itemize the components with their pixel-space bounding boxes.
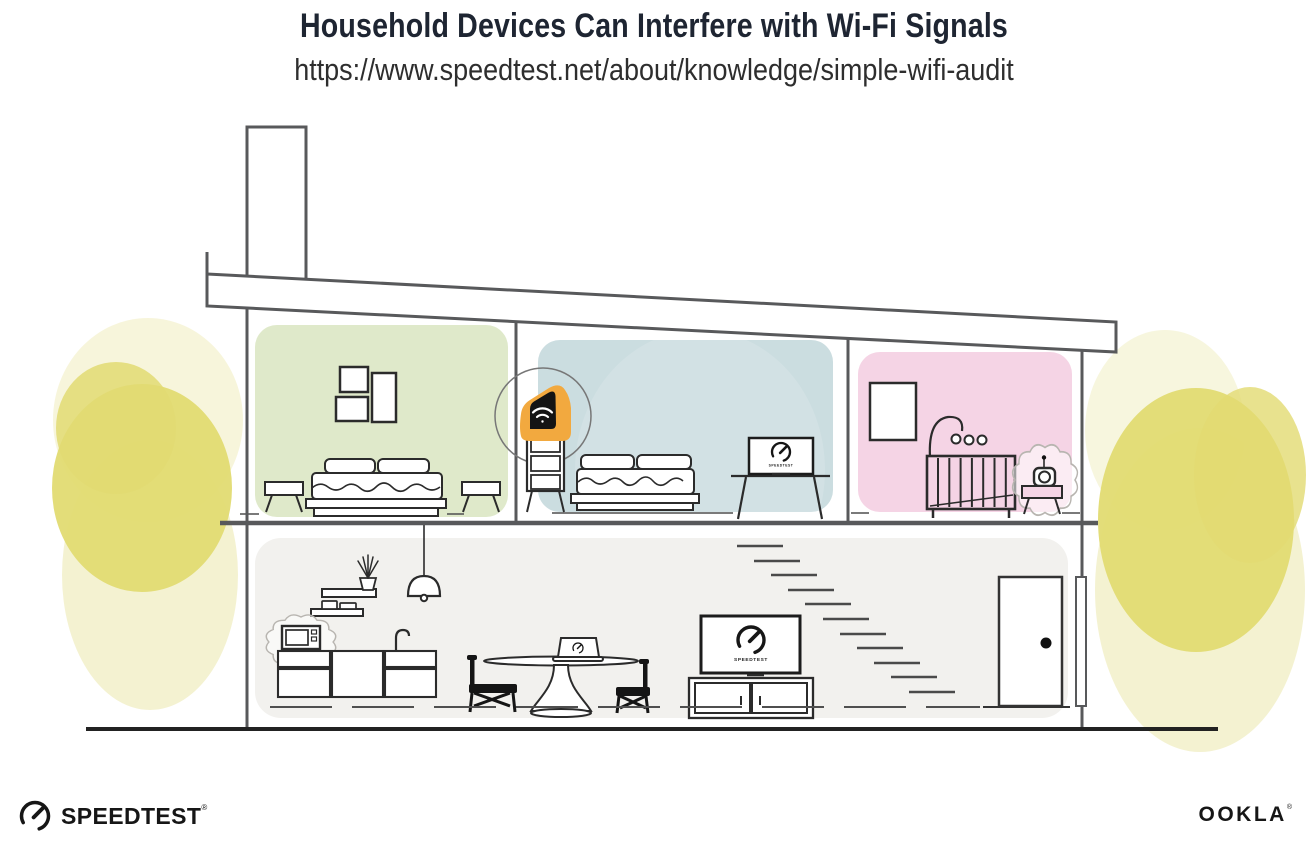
living-tv-label: SPEEDTEST [734, 657, 768, 663]
house-illustration: SPEEDTEST [0, 0, 1308, 861]
living-tv: SPEEDTEST [701, 616, 800, 675]
bedroom-tv: SPEEDTEST [749, 438, 813, 474]
microwave-icon [282, 626, 320, 649]
downspout [1076, 577, 1086, 706]
doorknob-icon [1041, 638, 1052, 649]
tree-left [52, 318, 243, 710]
bed [306, 459, 446, 516]
source-url: https://www.speedtest.net/about/knowledg… [85, 52, 1223, 88]
tree-right [1085, 330, 1306, 752]
media-console [689, 678, 813, 718]
picture-frame-icon [870, 383, 916, 440]
chimney [247, 127, 306, 281]
bedroom-tv-label: SPEEDTEST [769, 464, 794, 468]
bed [571, 455, 699, 510]
laptop-icon [553, 638, 603, 661]
header: Household Devices Can Interfere with Wi-… [0, 6, 1308, 88]
page-title: Household Devices Can Interfere with Wi-… [105, 6, 1204, 46]
infographic-page: Household Devices Can Interfere with Wi-… [0, 0, 1308, 861]
